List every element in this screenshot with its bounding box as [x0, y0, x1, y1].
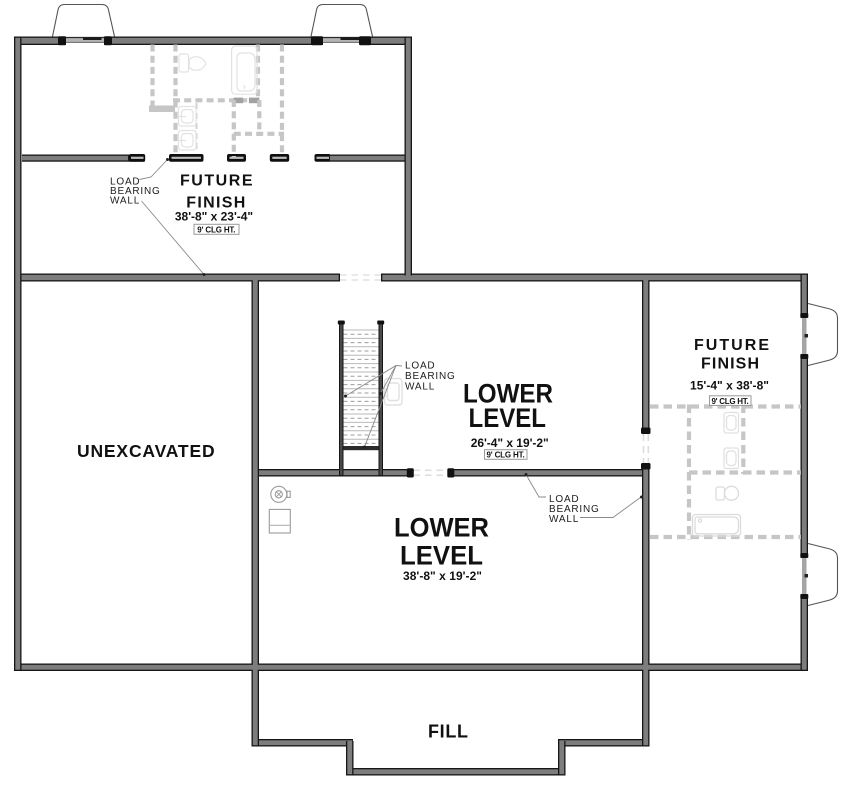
svg-text:15'-4" x 38'-8": 15'-4" x 38'-8": [690, 379, 769, 393]
svg-text:38'-8" x 19'-2": 38'-8" x 19'-2": [403, 569, 482, 583]
svg-text:WALL: WALL: [549, 514, 579, 525]
svg-text:FINISH: FINISH: [701, 356, 759, 373]
svg-text:BEARING: BEARING: [405, 371, 456, 382]
svg-text:WALL: WALL: [405, 382, 435, 393]
svg-text:LEVEL: LEVEL: [400, 541, 483, 571]
svg-text:LOWER: LOWER: [394, 513, 489, 543]
svg-text:UNEXCAVATED: UNEXCAVATED: [77, 441, 215, 461]
svg-text:LOAD: LOAD: [405, 361, 435, 372]
svg-text:FUTURE: FUTURE: [180, 173, 253, 190]
svg-text:FILL: FILL: [428, 722, 468, 742]
svg-text:26'-4" x 19'-2": 26'-4" x 19'-2": [471, 436, 549, 450]
svg-text:38'-8" x 23'-4": 38'-8" x 23'-4": [175, 209, 253, 223]
svg-text:FUTURE: FUTURE: [694, 337, 769, 354]
svg-text:LEVEL: LEVEL: [469, 403, 547, 433]
svg-text:WALL: WALL: [110, 196, 140, 207]
svg-text:9' CLG HT.: 9' CLG HT.: [487, 451, 526, 460]
svg-text:9' CLG HT.: 9' CLG HT.: [712, 397, 750, 406]
svg-text:9' CLG HT.: 9' CLG HT.: [197, 226, 236, 235]
